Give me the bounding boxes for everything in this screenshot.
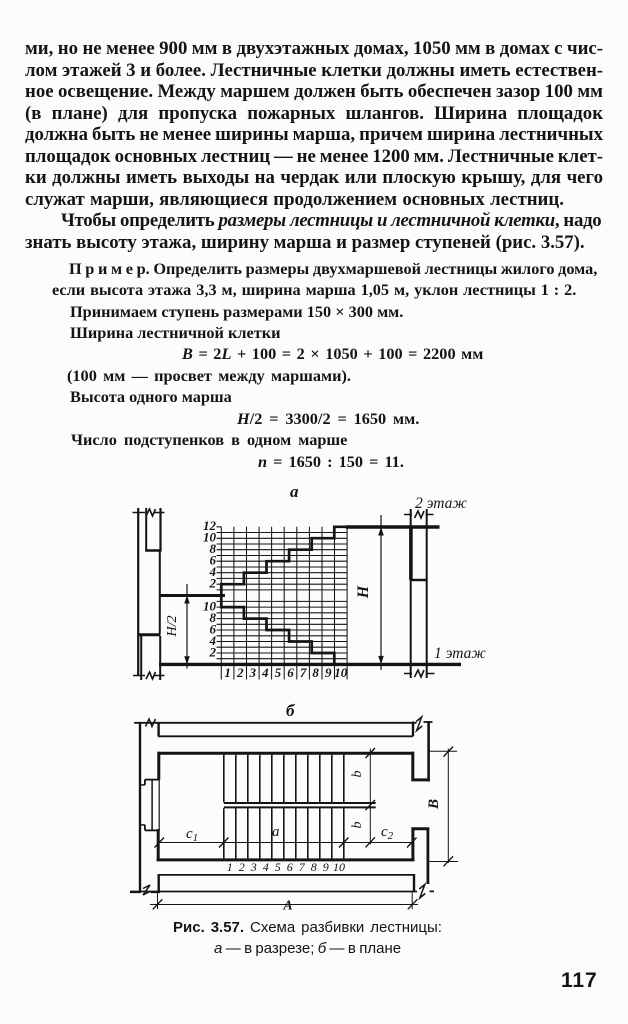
svg-text:6: 6 (287, 860, 293, 874)
svg-text:b: b (350, 822, 365, 829)
svg-text:а: а (290, 482, 299, 501)
svg-text:А: А (282, 899, 292, 914)
svg-text:1: 1 (224, 665, 231, 680)
svg-text:6: 6 (287, 665, 294, 680)
svg-text:4: 4 (261, 665, 269, 680)
svg-text:7: 7 (299, 860, 306, 874)
svg-text:8: 8 (312, 665, 319, 680)
svg-text:а: а (272, 824, 280, 840)
svg-text:10: 10 (334, 665, 348, 680)
svg-text:2: 2 (236, 665, 244, 680)
svg-text:7: 7 (300, 665, 307, 680)
svg-text:4: 4 (263, 860, 269, 874)
svg-text:9: 9 (323, 860, 329, 874)
svg-text:1 этаж: 1 этаж (434, 645, 486, 662)
svg-text:B: B (426, 799, 442, 810)
svg-text:5: 5 (275, 860, 281, 874)
svg-text:H: H (355, 585, 372, 599)
svg-text:9: 9 (325, 665, 332, 680)
svg-text:8: 8 (311, 860, 317, 874)
svg-text:10: 10 (333, 860, 345, 874)
svg-text:3: 3 (249, 665, 257, 680)
svg-text:2: 2 (209, 576, 217, 591)
svg-text:б: б (286, 701, 296, 720)
svg-text:5: 5 (275, 665, 282, 680)
svg-text:H/2: H/2 (165, 616, 180, 638)
svg-text:3: 3 (250, 860, 257, 874)
svg-text:c2: c2 (381, 824, 394, 842)
svg-text:1: 1 (227, 860, 233, 874)
svg-text:2: 2 (209, 645, 217, 660)
svg-text:b: b (350, 771, 365, 778)
svg-text:2 этаж: 2 этаж (415, 495, 467, 512)
svg-text:2: 2 (239, 860, 245, 874)
svg-text:c1: c1 (186, 826, 198, 844)
